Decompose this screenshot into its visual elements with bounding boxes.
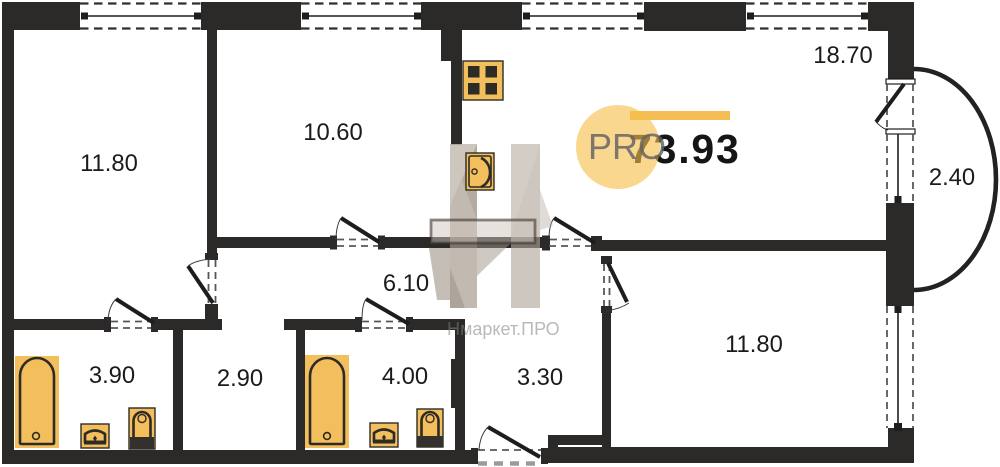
svg-text:PRO: PRO bbox=[588, 126, 666, 167]
svg-text:11.80: 11.80 bbox=[80, 150, 138, 177]
svg-text:18.70: 18.70 bbox=[813, 42, 873, 69]
svg-text:3.30: 3.30 bbox=[517, 364, 563, 391]
svg-text:2.90: 2.90 bbox=[217, 365, 263, 392]
svg-text:2.40: 2.40 bbox=[929, 164, 975, 191]
svg-text:4.00: 4.00 bbox=[382, 363, 428, 390]
svg-text:3.90: 3.90 bbox=[89, 362, 135, 389]
svg-text:11.80: 11.80 bbox=[725, 331, 783, 358]
svg-text:Нмаркет.ПРО: Нмаркет.ПРО bbox=[447, 319, 560, 339]
svg-text:6.10: 6.10 bbox=[383, 270, 429, 297]
svg-text:10.60: 10.60 bbox=[303, 119, 363, 146]
